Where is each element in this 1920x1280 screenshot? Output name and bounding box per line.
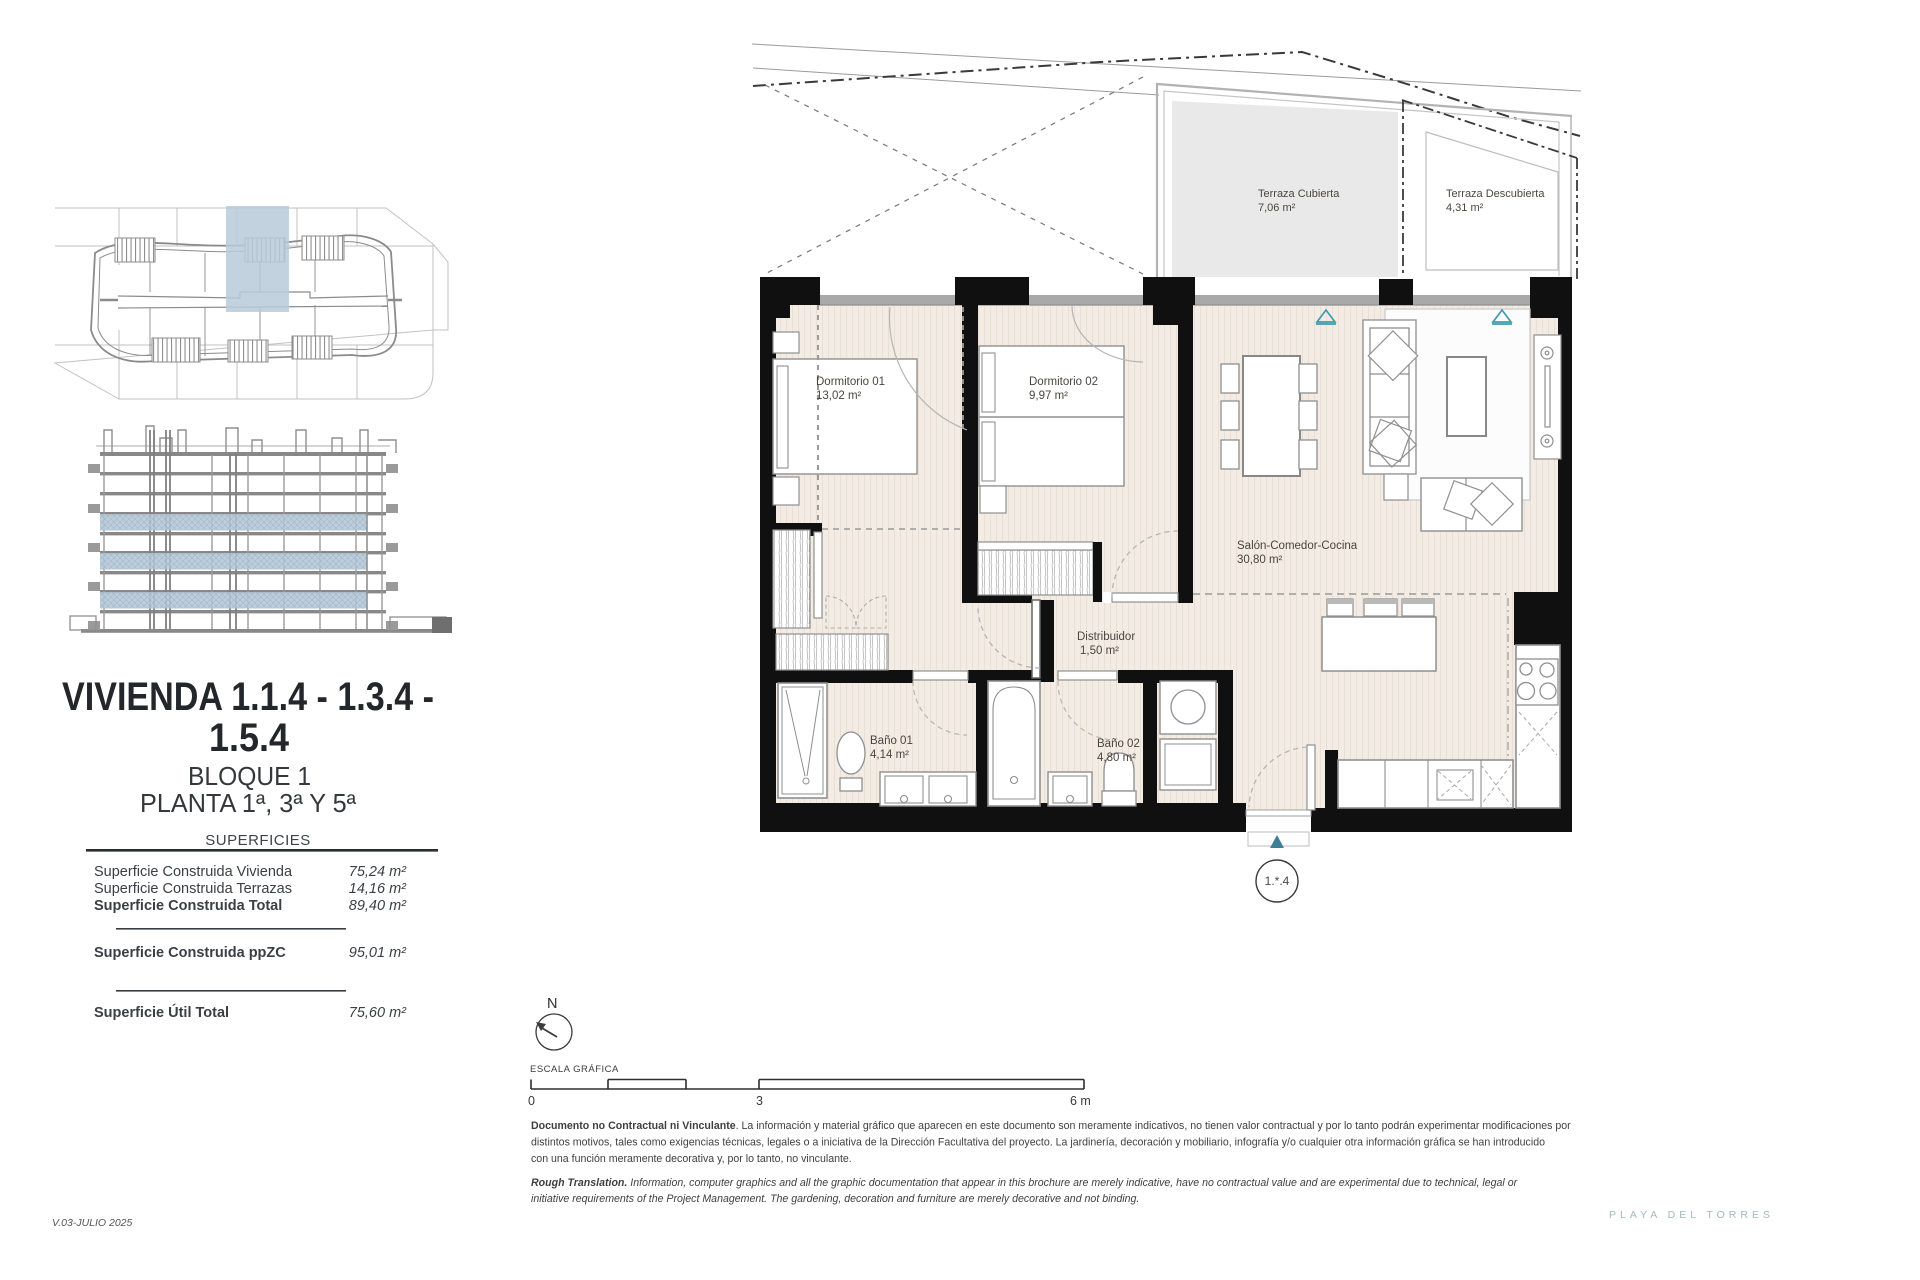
svg-text:Dormitorio 02: Dormitorio 02 — [1029, 376, 1098, 388]
svg-text:PLAYA DEL TORRES: PLAYA DEL TORRES — [1609, 1209, 1774, 1221]
svg-text:Superficie Construida Total: Superficie Construida Total — [94, 898, 282, 914]
svg-text:Distribuidor: Distribuidor — [1077, 631, 1135, 643]
svg-text:VIVIENDA 1.1.4 - 1.3.4 -: VIVIENDA 1.1.4 - 1.3.4 - — [62, 675, 434, 719]
svg-text:1,50 m²: 1,50 m² — [1080, 645, 1119, 657]
svg-text:4,80 m²: 4,80 m² — [1097, 752, 1136, 764]
svg-text:con una función meramente deco: con una función meramente decorativa y, … — [531, 1153, 852, 1165]
svg-text:Baño 02: Baño 02 — [1097, 738, 1140, 750]
svg-text:Salón-Comedor-Cocina: Salón-Comedor-Cocina — [1237, 540, 1358, 552]
svg-text:6 m: 6 m — [1070, 1094, 1091, 1108]
svg-text:89,40 m²: 89,40 m² — [349, 898, 407, 914]
svg-text:9,97 m²: 9,97 m² — [1029, 390, 1068, 402]
svg-text:4,14 m²: 4,14 m² — [870, 749, 909, 761]
svg-text:Superficie Construida Vivienda: Superficie Construida Vivienda — [94, 864, 293, 880]
svg-text:V.03-JULIO 2025: V.03-JULIO 2025 — [52, 1217, 133, 1229]
svg-text:30,80 m²: 30,80 m² — [1237, 554, 1283, 566]
svg-text:Superficie Construida Terrazas: Superficie Construida Terrazas — [94, 881, 292, 897]
svg-text:Terraza Cubierta: Terraza Cubierta — [1258, 188, 1340, 200]
svg-text:13,02 m²: 13,02 m² — [816, 390, 862, 402]
svg-text:BLOQUE 1: BLOQUE 1 — [188, 761, 311, 791]
svg-text:PLANTA 1ª, 3ª Y 5ª: PLANTA 1ª, 3ª Y 5ª — [140, 788, 356, 818]
svg-text:Dormitorio 01: Dormitorio 01 — [816, 376, 885, 388]
svg-text:initiative requirements of the: initiative requirements of the Project M… — [531, 1193, 1139, 1205]
svg-text:distintos motivos, tales como: distintos motivos, tales como exigencias… — [531, 1137, 1545, 1149]
svg-text:3: 3 — [756, 1094, 763, 1108]
svg-text:SUPERFICIES: SUPERFICIES — [205, 832, 311, 849]
svg-text:Superficie Útil Total: Superficie Útil Total — [94, 1003, 229, 1021]
svg-text:Documento no Contractual ni Vi: Documento no Contractual ni Vinculante. … — [531, 1120, 1571, 1132]
svg-text:4,31 m²: 4,31 m² — [1446, 202, 1484, 214]
svg-text:1.5.4: 1.5.4 — [209, 716, 290, 760]
svg-text:75,24 m²: 75,24 m² — [349, 864, 407, 880]
svg-text:Baño 01: Baño 01 — [870, 735, 913, 747]
svg-text:Superficie Construida ppZC: Superficie Construida ppZC — [94, 945, 286, 961]
svg-text:N: N — [547, 996, 557, 1012]
svg-text:7,06 m²: 7,06 m² — [1258, 202, 1296, 214]
svg-text:95,01 m²: 95,01 m² — [349, 945, 407, 961]
svg-text:75,60 m²: 75,60 m² — [349, 1005, 407, 1021]
svg-text:Terraza Descubierta: Terraza Descubierta — [1446, 188, 1545, 200]
svg-text:1.*.4: 1.*.4 — [1265, 874, 1290, 888]
svg-text:Rough Translation. Information: Rough Translation. Information, computer… — [531, 1177, 1518, 1189]
svg-text:0: 0 — [528, 1094, 535, 1108]
svg-text:14,16 m²: 14,16 m² — [349, 881, 407, 897]
svg-text:ESCALA GRÁFICA: ESCALA GRÁFICA — [530, 1064, 619, 1075]
